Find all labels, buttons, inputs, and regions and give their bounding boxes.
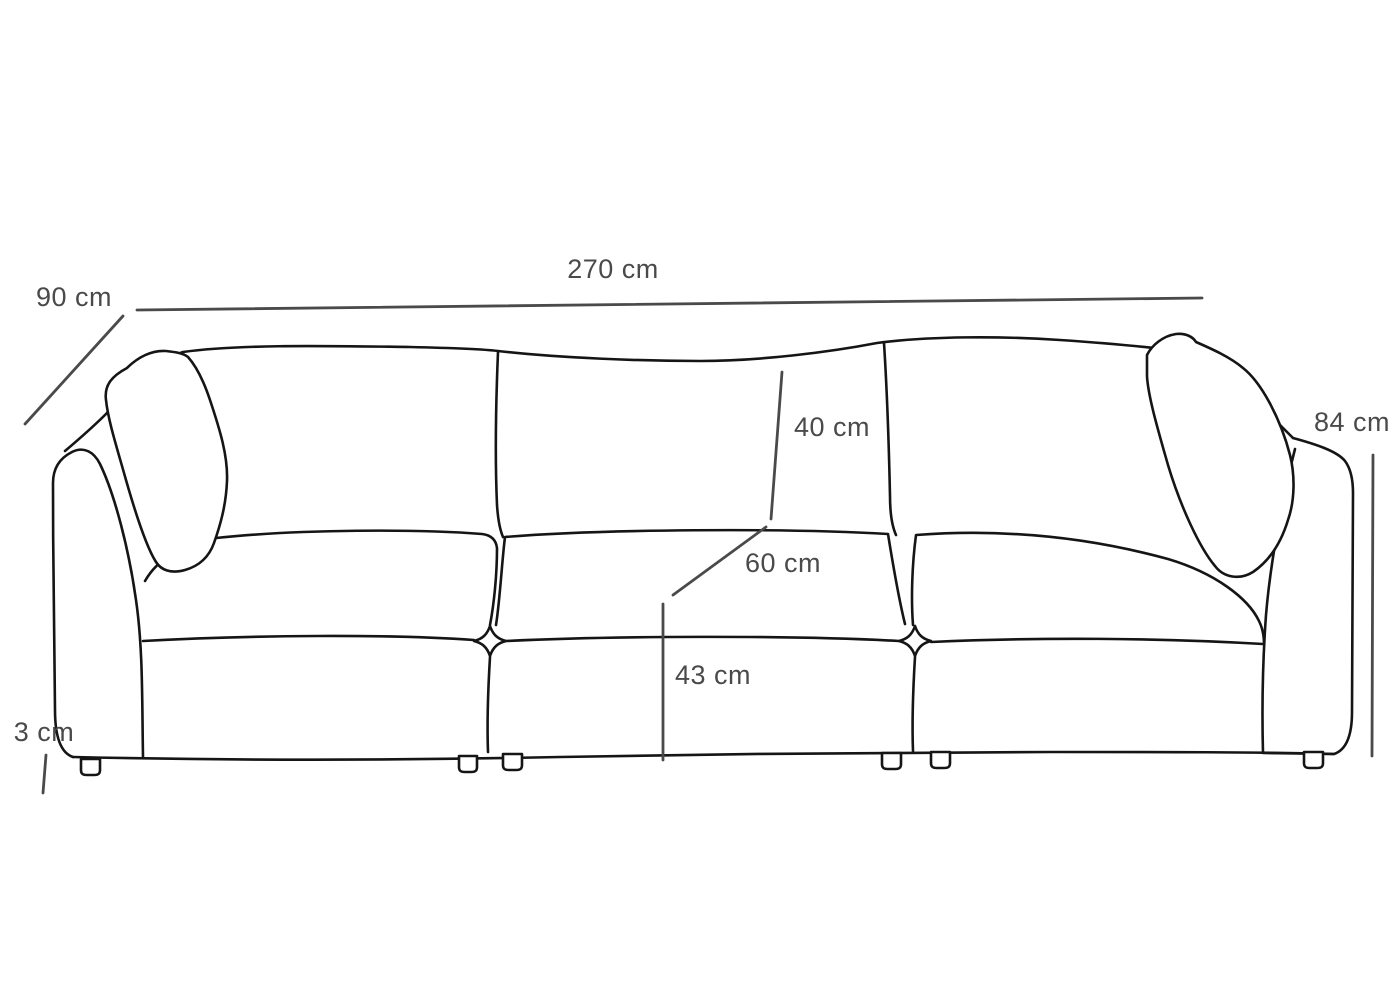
dimension-label-seat-depth: 60 cm <box>745 548 821 578</box>
base-seam-left <box>488 657 490 752</box>
sofa-leg <box>882 753 901 769</box>
sofa-leg <box>931 752 950 768</box>
sofa-leg <box>459 756 477 772</box>
left-corner-edge <box>65 413 107 451</box>
back-seam-right <box>884 343 896 535</box>
sofa-leg <box>503 754 522 770</box>
sofa-drawing <box>53 334 1353 775</box>
base-front-left <box>143 636 474 641</box>
dimension-line-leg-height <box>43 755 46 793</box>
dimension-line-overall-width <box>137 298 1202 310</box>
base-front-right <box>931 639 1263 644</box>
pinch-star-left <box>474 626 506 656</box>
diagram-canvas: 270 cm 90 cm 84 cm 40 cm 60 cm 43 cm 3 c… <box>0 0 1400 990</box>
base-seam-right <box>913 657 915 751</box>
sofa-leg <box>81 759 100 775</box>
dimension-label-overall-height: 84 cm <box>1314 407 1390 437</box>
pinch-star-right <box>899 626 931 656</box>
dimension-label-back-cushion-height: 40 cm <box>794 412 870 442</box>
dimension-line-overall-height <box>1372 455 1373 756</box>
sofa-dimension-diagram: 270 cm 90 cm 84 cm 40 cm 60 cm 43 cm 3 c… <box>0 0 1400 990</box>
back-top-edge <box>107 337 1293 438</box>
dimension-label-seat-height: 43 cm <box>675 660 751 690</box>
back-pillow-right <box>1147 334 1294 577</box>
back-seam-left <box>496 352 503 537</box>
dimension-label-leg-height: 3 cm <box>14 717 75 747</box>
sofa-leg <box>1304 752 1323 768</box>
sofa-bottom-edge <box>73 752 1334 760</box>
dimension-line-back-cushion-height <box>771 372 782 519</box>
dimension-label-depth: 90 cm <box>36 282 112 312</box>
base-front-middle <box>506 637 899 641</box>
seat-cushion-middle <box>496 530 905 625</box>
dimension-label-overall-width: 270 cm <box>567 254 659 284</box>
